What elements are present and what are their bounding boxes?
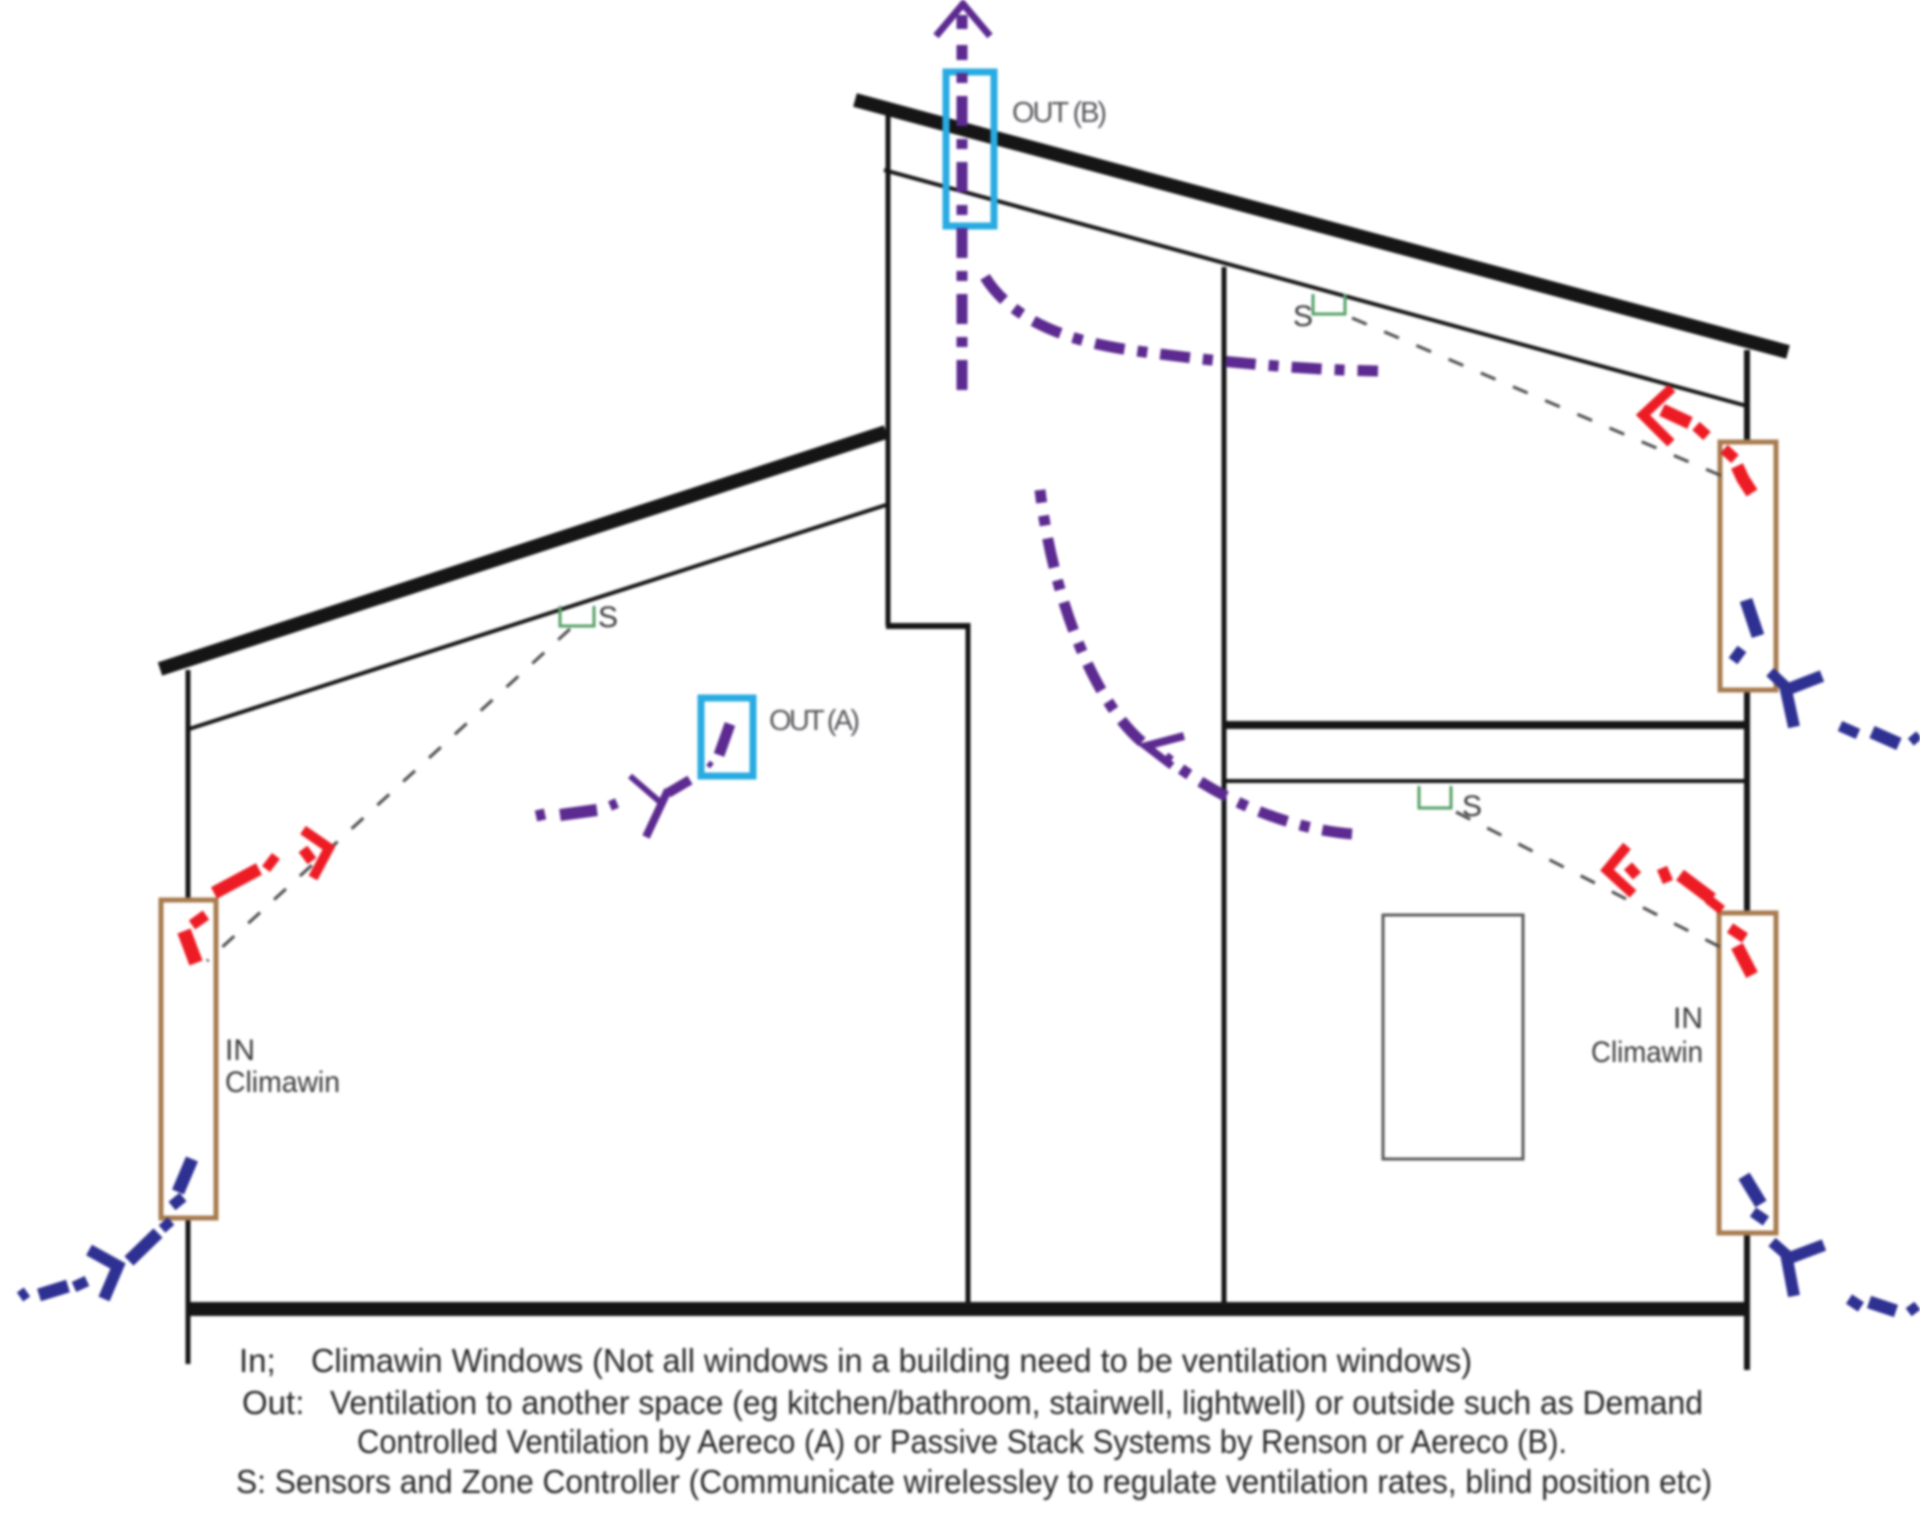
svg-text:S: S xyxy=(1293,300,1313,333)
svg-text:In;: In; xyxy=(239,1342,276,1379)
svg-text:S: S xyxy=(598,601,618,634)
svg-text:OUT (B): OUT (B) xyxy=(1012,97,1107,129)
svg-text:Ventilation to another space (: Ventilation to another space (eg kitchen… xyxy=(330,1384,1703,1421)
svg-text:Climawin: Climawin xyxy=(1591,1036,1703,1069)
svg-text:IN: IN xyxy=(1673,1002,1703,1035)
svg-text:Controlled Ventilation by Aere: Controlled Ventilation by Aereco (A) or … xyxy=(357,1423,1567,1460)
svg-text:Out:: Out: xyxy=(242,1384,304,1421)
svg-text:Climawin Windows (Not all wind: Climawin Windows (Not all windows in a b… xyxy=(311,1342,1472,1379)
svg-text:IN: IN xyxy=(225,1034,255,1067)
svg-text:OUT (A): OUT (A) xyxy=(769,705,860,737)
svg-text:S: Sensors and Zone Controller: S: Sensors and Zone Controller (Communic… xyxy=(236,1463,1712,1500)
svg-text:S: S xyxy=(1462,790,1482,823)
svg-text:Climawin: Climawin xyxy=(225,1066,340,1099)
